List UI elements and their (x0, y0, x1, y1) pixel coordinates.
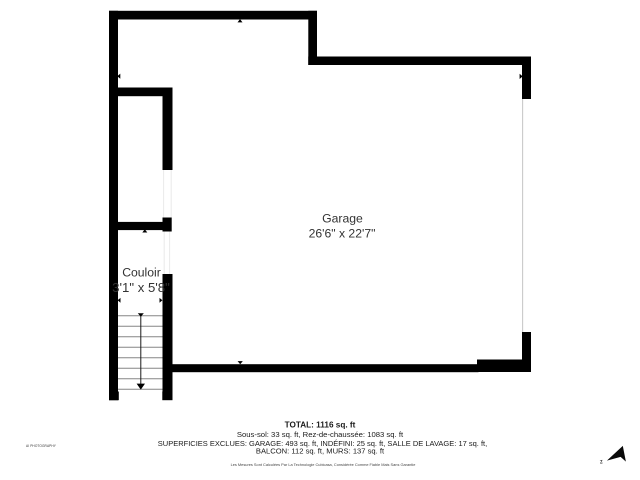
svg-text:Couloir: Couloir (122, 265, 161, 279)
svg-text:Les Mesures Sont Calculées Par: Les Mesures Sont Calculées Par La Techno… (231, 462, 416, 467)
svg-text:BALCON: 112 sq. ft, MURS: 137: BALCON: 112 sq. ft, MURS: 137 sq. ft (256, 447, 385, 456)
svg-text:AI PHOTOGRAPHY: AI PHOTOGRAPHY (26, 444, 57, 448)
svg-text:z: z (599, 458, 603, 465)
svg-text:TOTAL: 1116 sq. ft: TOTAL: 1116 sq. ft (285, 421, 356, 430)
svg-text:3'1" x 5'8": 3'1" x 5'8" (112, 280, 170, 295)
svg-text:Sous-sol: 33 sq. ft, Rez-de-ch: Sous-sol: 33 sq. ft, Rez-de-chaussée: 10… (237, 430, 404, 439)
svg-text:Garage: Garage (322, 212, 363, 226)
svg-text:26'6" x 22'7": 26'6" x 22'7" (309, 227, 376, 241)
